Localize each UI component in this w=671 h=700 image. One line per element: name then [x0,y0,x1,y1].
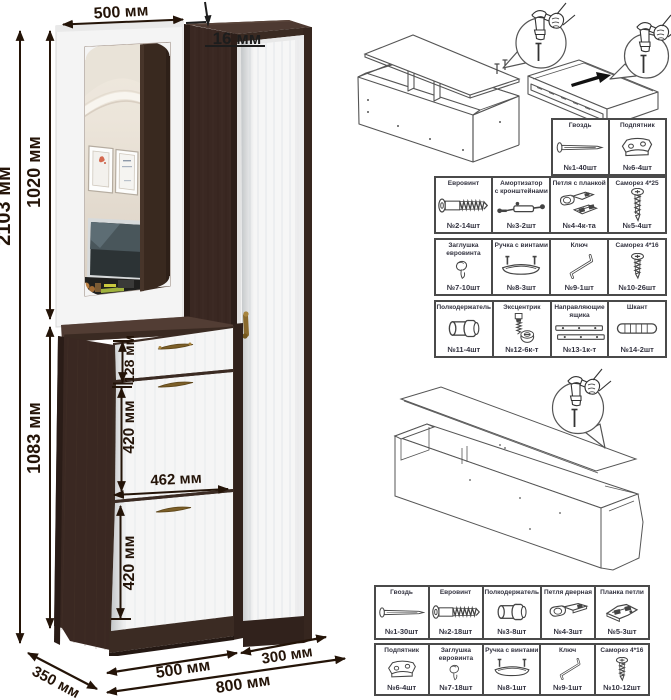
svg-text:128 мм: 128 мм [121,335,137,383]
svg-text:420 мм: 420 мм [121,536,138,591]
svg-text:500 мм: 500 мм [93,2,149,22]
svg-text:420 мм: 420 мм [121,400,138,453]
svg-text:16 мм: 16 мм [213,29,262,48]
svg-text:1020 мм: 1020 мм [24,136,44,208]
svg-text:462 мм: 462 мм [150,470,202,490]
svg-text:2103 мм: 2103 мм [0,166,15,246]
svg-text:1083 мм: 1083 мм [24,402,44,474]
